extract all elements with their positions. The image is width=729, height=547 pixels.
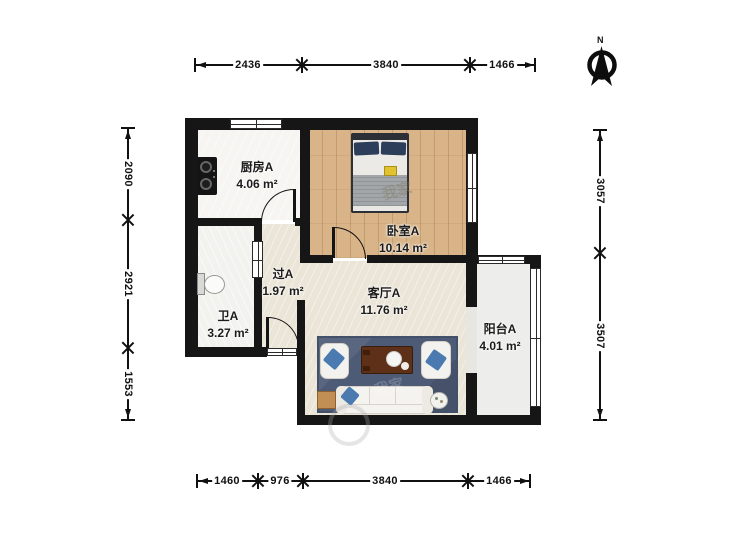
dimension-value: 1460: [212, 475, 242, 487]
stove-burner: [200, 178, 212, 190]
dimension-value: 3840: [371, 59, 401, 71]
sofa-cushion-line: [369, 387, 370, 404]
kitchen-window: [230, 119, 282, 129]
wall: [297, 415, 541, 425]
sofa-back-line: [347, 404, 422, 405]
room-area: 4.01 m²: [479, 338, 520, 355]
balcony-door-threshold: [466, 307, 477, 373]
dimension-value: 2436: [233, 59, 263, 71]
room-area: 4.06 m²: [236, 176, 277, 193]
room-name: 过A: [262, 266, 303, 283]
wall: [300, 118, 310, 263]
wall: [466, 373, 477, 425]
room-name: 厨房A: [236, 159, 277, 176]
dimension-value: 976: [268, 475, 291, 487]
room-name: 卫A: [207, 308, 248, 325]
wall: [185, 118, 478, 130]
stove-knob: [213, 176, 215, 178]
plant-sprig: [435, 397, 438, 400]
table-deco: [363, 350, 370, 355]
bed-sheet-fold: [353, 206, 407, 211]
room-name: 客厅A: [360, 285, 407, 302]
stove-knob: [213, 170, 215, 172]
table-deco: [363, 366, 370, 371]
wall: [297, 300, 305, 425]
table-cup: [401, 362, 409, 370]
stove-burner: [200, 161, 212, 173]
toilet-bowl: [204, 275, 225, 294]
room-label-hallway: 过A 1.97 m²: [262, 266, 303, 300]
balcony-top-window: [478, 256, 525, 264]
room-area: 1.97 m²: [262, 283, 303, 300]
room-label-kitchen: 厨房A 4.06 m²: [236, 159, 277, 193]
plant-pot: [430, 392, 448, 409]
room-name: 卧室A: [379, 223, 427, 240]
dimension-value: 1466: [484, 475, 514, 487]
room-label-bedroom: 卧室A 10.14 m²: [379, 223, 427, 257]
table-plate: [386, 351, 402, 367]
wall: [254, 218, 262, 357]
wall: [185, 218, 262, 226]
dimension-value: 1466: [487, 59, 517, 71]
dimension-value: 1553: [122, 369, 134, 399]
bed-pillow: [354, 141, 380, 155]
floor-plan: 我家 我家 厨房A 4.06 m² 卧室A 10.14 m² 过A 1.97 m…: [0, 0, 729, 547]
side-table: [317, 391, 336, 409]
dimension-value: 3507: [594, 321, 606, 351]
wall: [300, 255, 333, 263]
bed-tray: [384, 166, 397, 176]
dimension-value: 3057: [594, 176, 606, 206]
wall: [185, 118, 198, 357]
compass-arrow-icon: [584, 46, 620, 88]
bedroom-window: [467, 153, 477, 223]
north-label: N: [597, 35, 604, 45]
dimension-value: 2090: [122, 159, 134, 189]
dimension-value: 2921: [122, 269, 134, 299]
room-area: 11.76 m²: [360, 302, 407, 319]
room-name: 阳台A: [479, 321, 520, 338]
room-area: 10.14 m²: [379, 240, 427, 257]
entrance-threshold: [267, 348, 297, 356]
wall: [466, 255, 477, 307]
bed-pillow: [381, 142, 406, 156]
room-area: 3.27 m²: [207, 325, 248, 342]
balcony-side-window: [530, 268, 541, 407]
room-label-balcony: 阳台A 4.01 m²: [479, 321, 520, 355]
bed-blanket: [353, 175, 407, 206]
sofa-cushion-line: [395, 387, 396, 404]
dimension-value: 3840: [370, 475, 400, 487]
room-label-living: 客厅A 11.76 m²: [360, 285, 407, 319]
room-label-bathroom: 卫A 3.27 m²: [207, 308, 248, 342]
plant-sprig: [440, 400, 443, 403]
